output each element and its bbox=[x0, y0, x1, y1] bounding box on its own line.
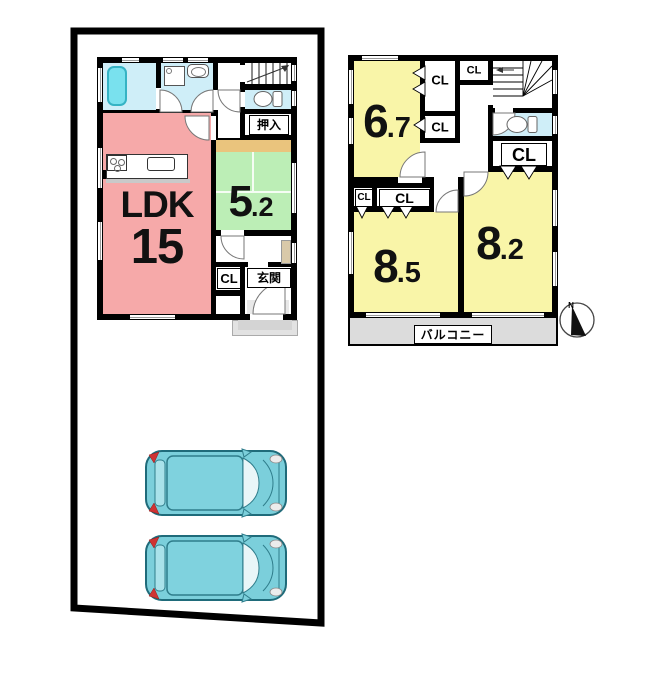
door-arc bbox=[185, 116, 209, 140]
room-8-5-label: 8 .5 bbox=[373, 239, 421, 293]
stairs-2f-treads bbox=[493, 61, 552, 96]
entrance-label: 玄関 bbox=[247, 268, 291, 288]
door-arc bbox=[221, 236, 244, 259]
room-8-2-label: 8 .2 bbox=[476, 216, 524, 270]
room-ldk-label: LDK 15 bbox=[103, 186, 211, 272]
compass-north-label: N bbox=[568, 301, 574, 310]
door-arc bbox=[464, 172, 488, 196]
detail-layer: N bbox=[0, 0, 647, 675]
toilet-icon-1f bbox=[254, 92, 282, 107]
toilet-icon-2f bbox=[507, 117, 537, 133]
closet-2f-right-label: CL bbox=[501, 143, 547, 166]
stairs-1f-arrow bbox=[247, 65, 289, 82]
door-arc bbox=[160, 90, 182, 112]
compass-icon: N bbox=[560, 301, 594, 337]
room-6-7-label: 6 .7 bbox=[363, 94, 411, 148]
room-5-2-label: 5 .2 bbox=[228, 177, 273, 227]
door-arc bbox=[436, 190, 458, 212]
closet-2f-a-label: CL bbox=[431, 74, 448, 87]
door-arc bbox=[191, 90, 213, 112]
door-arcs bbox=[160, 90, 515, 314]
oshiire-label: 押入 bbox=[249, 115, 289, 135]
closet-2f-small-label: CL bbox=[355, 189, 373, 207]
closet-2f-b-label: CL bbox=[431, 121, 448, 134]
closet-2f-top-label: CL bbox=[467, 66, 482, 77]
door-arc bbox=[400, 152, 425, 177]
door-arc bbox=[218, 90, 240, 112]
closet-2f-big-label: CL bbox=[379, 189, 430, 207]
floor-plan-canvas: バルコニー bbox=[0, 0, 647, 675]
car-icon bbox=[146, 449, 286, 517]
ldk-text: LDK bbox=[103, 186, 211, 223]
closet-1f-label: CL bbox=[217, 268, 241, 289]
ldk-size-text: 15 bbox=[103, 223, 211, 272]
car-icon bbox=[146, 534, 286, 602]
